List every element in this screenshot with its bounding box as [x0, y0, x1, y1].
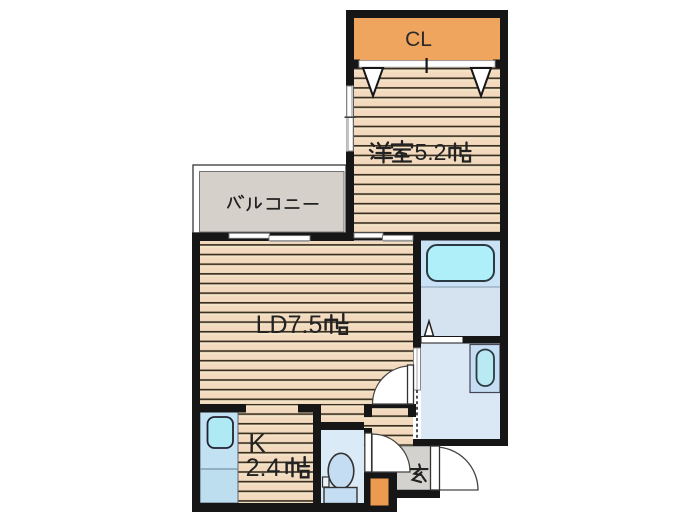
svg-text:CL: CL	[405, 28, 432, 51]
svg-text:5.2: 5.2	[415, 139, 447, 165]
svg-text:LD7.5: LD7.5	[256, 311, 323, 339]
svg-text:2.4: 2.4	[246, 454, 281, 482]
